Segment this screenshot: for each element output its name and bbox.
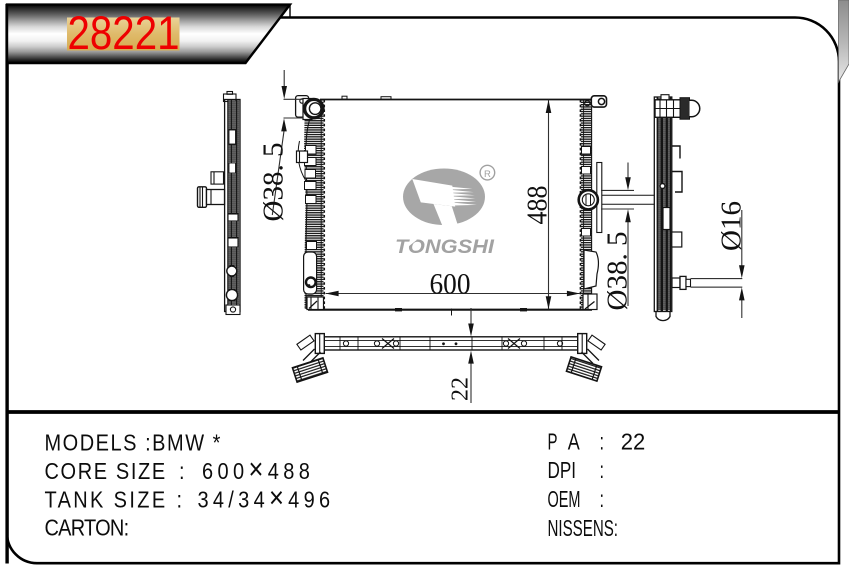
svg-text:DPI: DPI bbox=[548, 457, 577, 483]
svg-text::: : bbox=[176, 486, 182, 513]
svg-text:CORE SIZE: CORE SIZE bbox=[44, 457, 165, 484]
svg-text:Ø16: Ø16 bbox=[716, 201, 748, 251]
svg-text:488: 488 bbox=[522, 186, 554, 225]
svg-text:OEM: OEM bbox=[548, 486, 581, 512]
svg-text::: : bbox=[600, 428, 605, 454]
svg-text:MODELS :BMW *: MODELS :BMW * bbox=[44, 429, 220, 456]
svg-text:NISSENS:: NISSENS: bbox=[548, 515, 619, 541]
svg-text:Ø38. 5: Ø38. 5 bbox=[258, 143, 290, 222]
svg-text:600: 600 bbox=[430, 268, 471, 301]
svg-text:22: 22 bbox=[448, 377, 474, 401]
svg-text:34/34×496: 34/34×496 bbox=[197, 480, 330, 513]
svg-text:R: R bbox=[484, 169, 491, 180]
svg-text::: : bbox=[179, 457, 185, 484]
svg-text:Ø38. 5: Ø38. 5 bbox=[602, 232, 634, 311]
svg-text:P: P bbox=[548, 428, 558, 454]
svg-text:28221: 28221 bbox=[68, 7, 180, 60]
svg-text:22: 22 bbox=[621, 428, 646, 454]
svg-text:600×488: 600×488 bbox=[202, 452, 310, 485]
svg-text::: : bbox=[600, 486, 605, 512]
svg-text:CARTON:: CARTON: bbox=[44, 514, 129, 541]
svg-text:TONGSHI: TONGSHI bbox=[395, 237, 495, 258]
svg-text:A: A bbox=[568, 428, 580, 454]
svg-text::: : bbox=[600, 457, 605, 483]
